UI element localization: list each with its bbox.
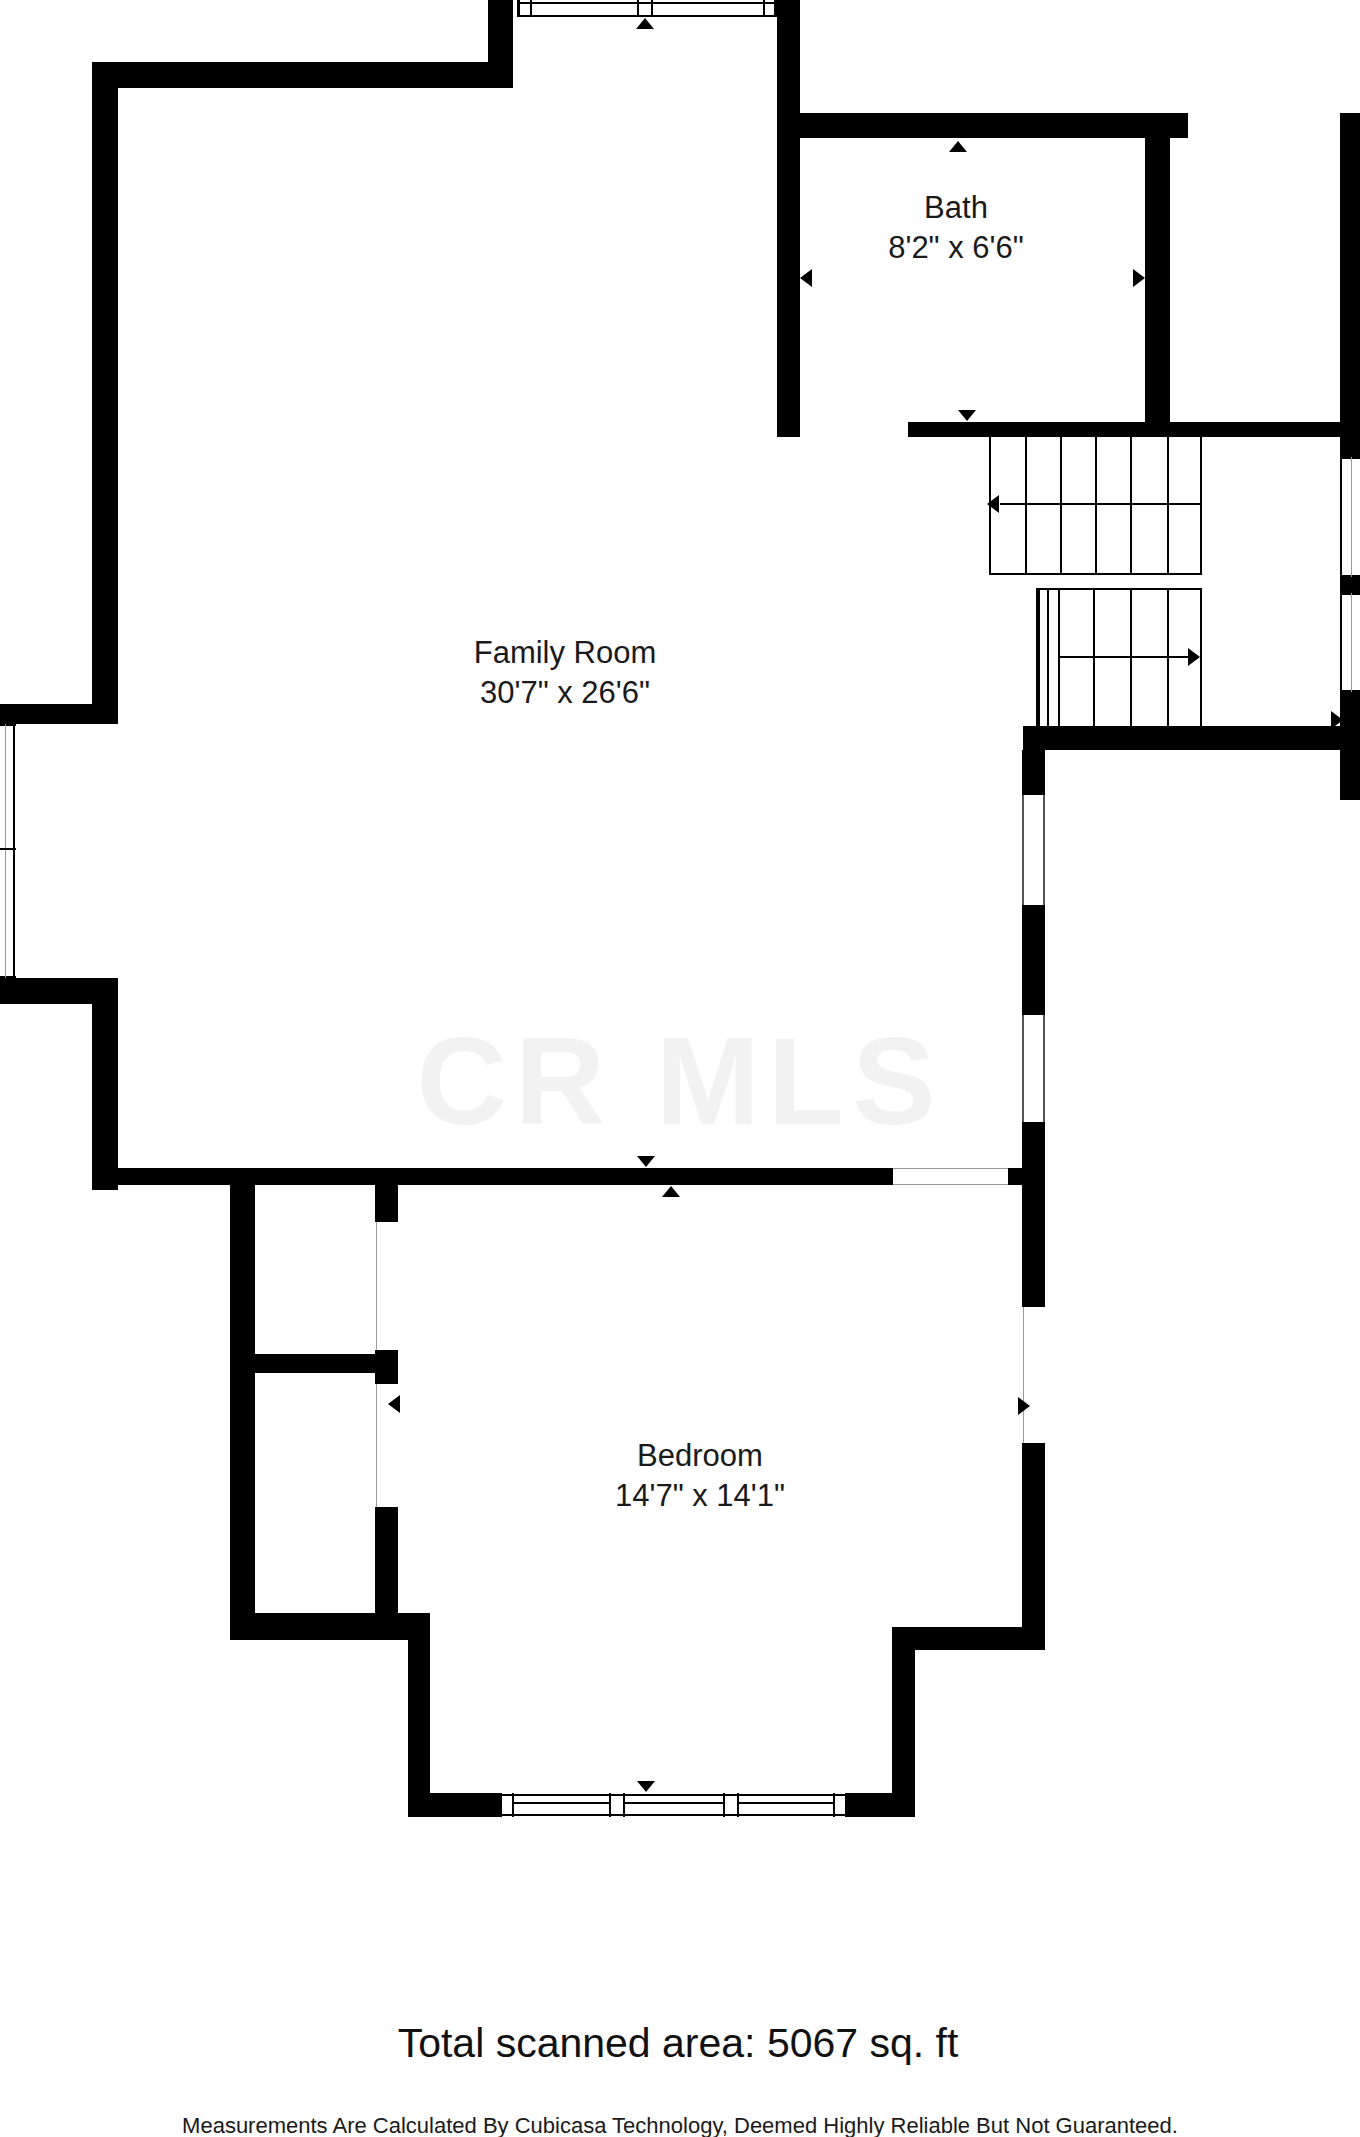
stair-direction-arrow	[987, 495, 999, 513]
wall	[408, 1640, 430, 1793]
stair-tread-line	[1025, 437, 1027, 575]
door-arrow-bedroom-top-b	[662, 1186, 680, 1197]
wall	[908, 422, 1360, 437]
wall	[255, 1354, 377, 1373]
wall	[1145, 138, 1170, 437]
door-opening	[376, 1222, 377, 1350]
door-opening	[893, 1184, 1008, 1185]
wall	[1022, 750, 1045, 795]
wall	[488, 0, 513, 88]
wall	[1022, 905, 1045, 1015]
room-label-family-room: Family Room 30'7" x 26'6"	[405, 633, 725, 713]
door-arrow-bath-bottom	[958, 410, 976, 421]
room-dimensions: 30'7" x 26'6"	[405, 673, 725, 713]
wall	[1022, 1122, 1045, 1307]
watermark: CR MLS	[355, 1000, 1005, 1160]
wall	[777, 113, 1188, 138]
room-name: Family Room	[405, 633, 725, 673]
door-arrow-bedroom-top-a	[637, 1156, 655, 1167]
wall	[92, 62, 513, 88]
wall	[375, 1185, 398, 1222]
wall	[375, 1350, 398, 1384]
stair-direction-line	[1000, 503, 1202, 505]
stair-exit-arrow	[1331, 711, 1343, 729]
wall	[1022, 1443, 1045, 1650]
floorplan-canvas: CR MLS	[0, 0, 1360, 2137]
stair-direction-arrow	[1188, 648, 1200, 666]
wall	[92, 62, 118, 704]
room-name: Bedroom	[540, 1436, 860, 1476]
stair-tread-line	[1130, 437, 1132, 575]
total-area-text: Total scanned area: 5067 sq. ft	[338, 2020, 1018, 2067]
stair-tread-line	[1200, 437, 1202, 575]
wall	[408, 1793, 500, 1817]
stair-tread-line	[1167, 437, 1169, 575]
wall	[0, 978, 118, 1004]
stair-direction-line	[1058, 656, 1190, 658]
wall	[1008, 1168, 1022, 1185]
wall	[0, 704, 118, 724]
door-opening	[376, 1384, 377, 1507]
door-arrow-closet	[388, 1395, 400, 1413]
room-label-bath: Bath 8'2" x 6'6"	[796, 188, 1116, 268]
wall	[230, 1613, 430, 1640]
door-arrow-top-window	[636, 18, 654, 29]
wall	[92, 1168, 893, 1185]
room-name: Bath	[796, 188, 1116, 228]
door-arrow-bath-right	[1133, 269, 1145, 287]
wall	[892, 1627, 915, 1817]
room-dimensions: 14'7" x 14'1"	[540, 1476, 860, 1516]
door-opening	[1023, 1307, 1024, 1443]
disclaimer-text: Measurements Are Calculated By Cubicasa …	[0, 2113, 1360, 2137]
door-arrow-bedroom-right	[1018, 1397, 1030, 1415]
stair-tread-line	[1060, 437, 1062, 575]
stair-tread-line	[1095, 437, 1097, 575]
wall	[1340, 113, 1360, 457]
door-arrow-bottom-window	[637, 1781, 655, 1792]
wall	[230, 1168, 255, 1638]
wall	[1023, 726, 1360, 750]
wall	[1340, 577, 1360, 593]
door-opening	[893, 1168, 1008, 1169]
door-arrow-bath-top	[949, 141, 967, 152]
room-label-bedroom: Bedroom 14'7" x 14'1"	[540, 1436, 860, 1516]
door-arrow-bath-left	[800, 269, 812, 287]
room-dimensions: 8'2" x 6'6"	[796, 228, 1116, 268]
wall	[92, 1004, 118, 1190]
